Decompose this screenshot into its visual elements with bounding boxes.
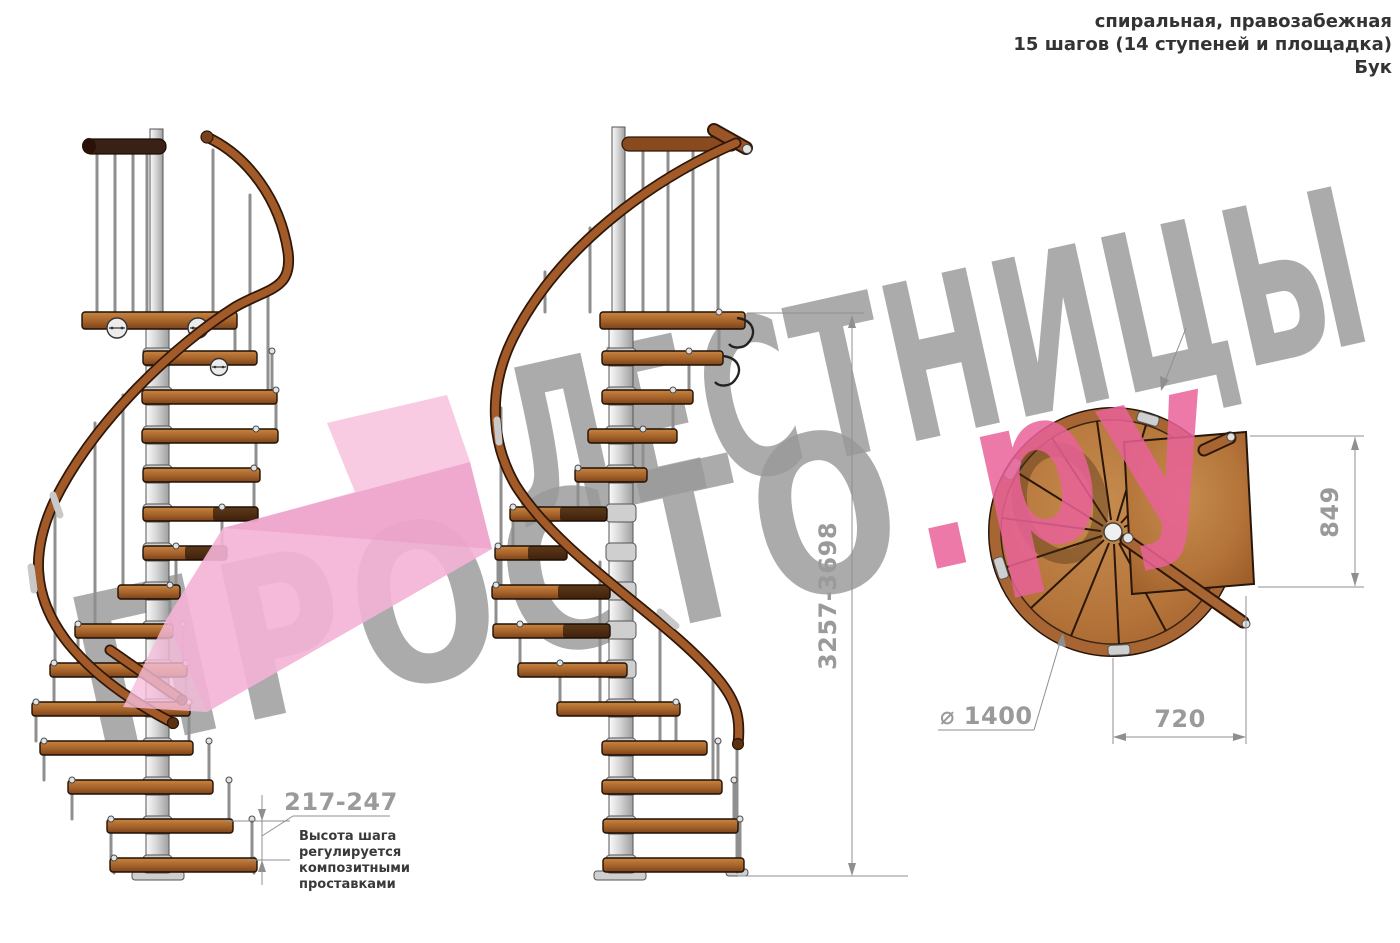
title-line-material: Бук — [1013, 56, 1392, 79]
drawing-canvas: ЛЕСТНИЦЫ ПРОСТО.ру — [0, 0, 1400, 943]
dim-step-height-label: 217-247 — [284, 788, 398, 816]
step-height-note: Высота шага регулируется композитными пр… — [299, 829, 410, 893]
dim-diameter: ⌀ 1400 — [938, 633, 1066, 730]
dim-total-height-label: 3257-3698 — [814, 522, 842, 670]
dim-total-height: 3257-3698 — [738, 313, 908, 876]
title-line-type: спиральная, правозабежная — [1013, 10, 1392, 33]
dim-diameter-label: ⌀ 1400 — [940, 702, 1033, 730]
dimension-layer: 3257-3698 849 720 ⌀ 1400 — [0, 0, 1400, 943]
dim-platform-width: 720 — [1113, 596, 1246, 744]
rim-leader-arrow — [1160, 328, 1186, 391]
dim-platform-depth: 849 — [1250, 436, 1364, 587]
dim-platform-width-label: 720 — [1154, 705, 1206, 733]
title-block: спиральная, правозабежная 15 шагов (14 с… — [1013, 10, 1392, 79]
title-line-steps: 15 шагов (14 ступеней и площадка) — [1013, 33, 1392, 56]
dim-platform-depth-label: 849 — [1316, 486, 1344, 538]
